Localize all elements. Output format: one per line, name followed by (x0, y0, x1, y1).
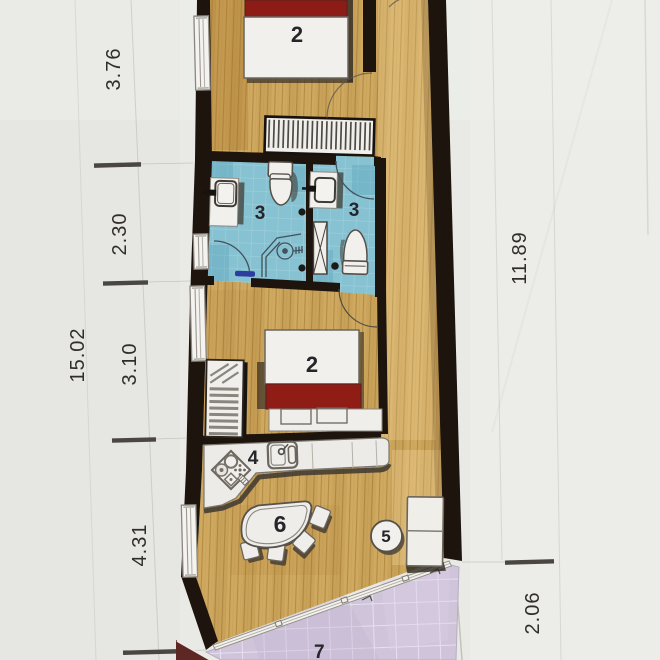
svg-text:3: 3 (349, 200, 360, 221)
svg-text:2.30: 2.30 (109, 213, 131, 256)
svg-text:4.31: 4.31 (129, 524, 151, 567)
svg-text:15.02: 15.02 (67, 327, 89, 382)
svg-text:3.76: 3.76 (103, 48, 125, 91)
svg-text:4: 4 (248, 448, 259, 469)
svg-text:6: 6 (274, 511, 287, 537)
svg-text:3: 3 (255, 203, 266, 224)
svg-text:2: 2 (291, 22, 303, 47)
svg-text:2.06: 2.06 (522, 592, 544, 635)
svg-text:2: 2 (306, 352, 318, 377)
svg-text:11.89: 11.89 (509, 231, 531, 285)
svg-text:7: 7 (314, 642, 325, 660)
svg-text:3.10: 3.10 (119, 343, 141, 386)
svg-text:5: 5 (381, 527, 390, 546)
